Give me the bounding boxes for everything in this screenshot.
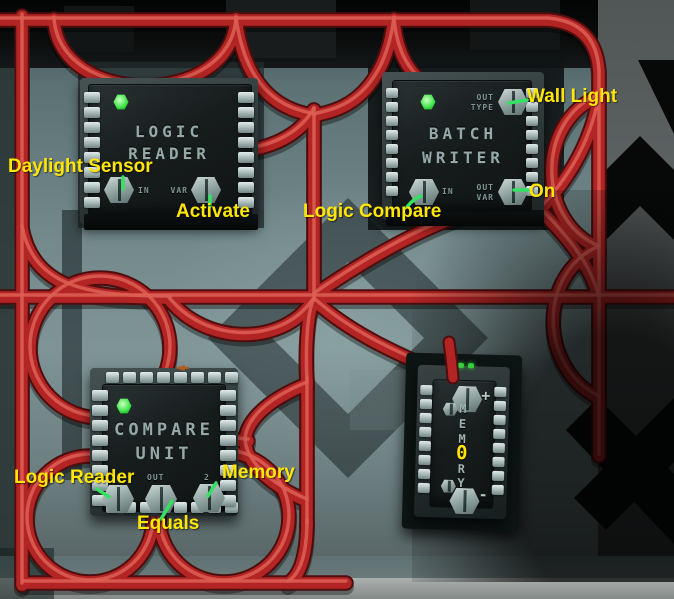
label-logic-reader: Logic Reader — [14, 467, 134, 489]
label-daylight-sensor: Daylight Sensor — [8, 156, 153, 178]
label-logic-compare: Logic Compare — [303, 201, 441, 223]
tick-memory — [208, 483, 216, 496]
game-screenshot: LOGIC READER IN VAR BATCH WRITER OUT TYP… — [0, 0, 674, 599]
label-equals: Equals — [137, 513, 199, 535]
label-wall-light: Wall Light — [527, 86, 617, 108]
pointer-ticks — [97, 100, 528, 519]
tick-logic-reader — [97, 489, 109, 497]
label-on: On — [529, 181, 555, 203]
label-memory: Memory — [222, 462, 295, 484]
label-activate: Activate — [176, 201, 250, 223]
memory-cable-stub — [449, 342, 453, 378]
tick-wall-light — [509, 100, 527, 103]
